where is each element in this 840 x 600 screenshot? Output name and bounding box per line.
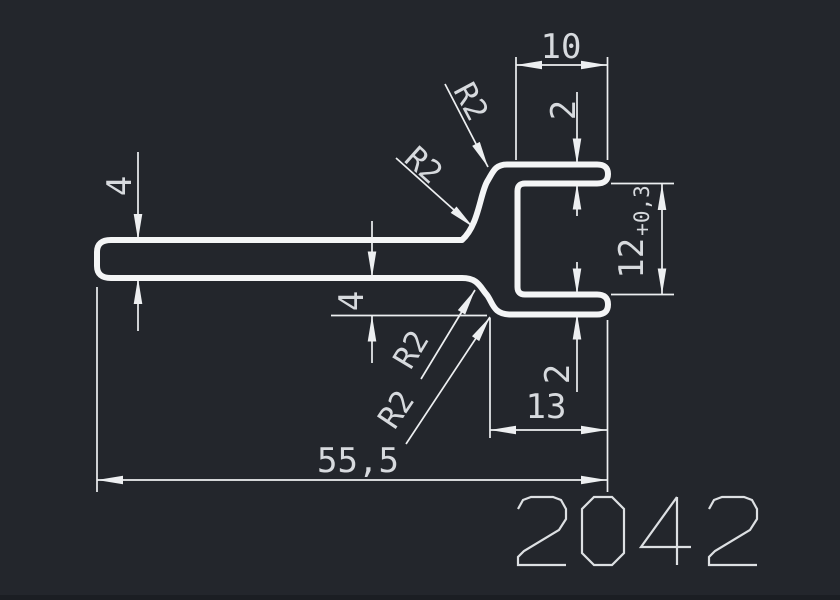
dim-label-wall-left: 4 [103,176,137,196]
inner-height-value: 12 [612,238,652,279]
cad-canvas: 10 2 12+0,3 4 4 2 13 55,5 R2 R2 R2 R2 [0,0,840,600]
dimension-lines [97,57,674,492]
dim-label-bottom-width: 13 [526,390,567,424]
dim-label-overall-length: 55,5 [317,444,399,478]
canvas-bottom-edge [0,595,840,600]
dim-label-bottom-thickness: 2 [541,364,575,384]
dim-label-wall-mid: 4 [335,291,369,311]
inner-height-tolerance: +0,3 [630,185,654,236]
drawing-geometry [0,0,840,600]
dim-label-top-thickness: 2 [547,100,581,120]
part-number [518,497,757,565]
dim-label-top-width: 10 [541,30,582,64]
dim-label-inner-height: 12+0,3 [615,185,653,279]
